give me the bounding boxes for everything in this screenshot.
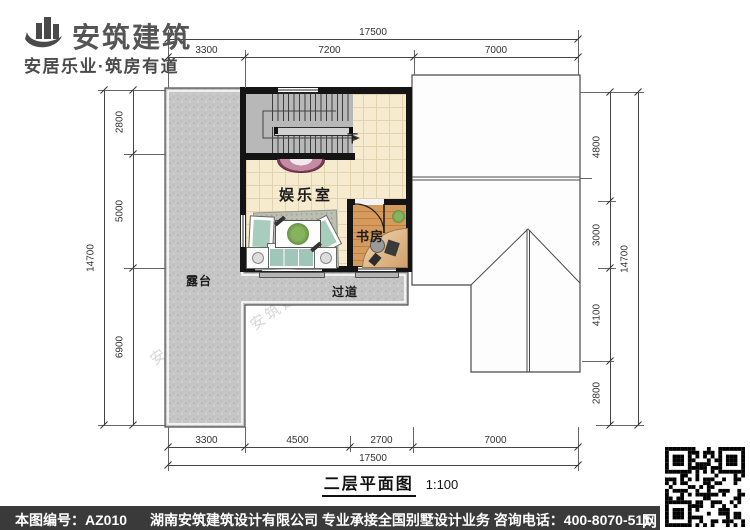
room-label-entertainment: 娱乐室 xyxy=(269,184,343,205)
room-label-terrace: 露台 xyxy=(186,272,212,289)
room-label-study: 书房 xyxy=(353,226,387,245)
logo-title: 安筑建筑 xyxy=(72,24,192,52)
stair-down-label: 下 xyxy=(347,130,358,146)
room-label-corridor: 过道 xyxy=(332,283,358,300)
logo: 安筑建筑 xyxy=(22,10,192,52)
blueprint-page: 娱乐室 书房 露台 过道 下 hnazjz.com 安筑建筑 安筑建筑 安筑建筑… xyxy=(0,0,750,530)
plan-overlay-drawing xyxy=(0,0,750,530)
logo-tagline: 安居乐业·筑房有道 xyxy=(24,52,179,77)
logo-building-icon xyxy=(22,10,68,52)
stair-direction-line xyxy=(263,111,352,138)
